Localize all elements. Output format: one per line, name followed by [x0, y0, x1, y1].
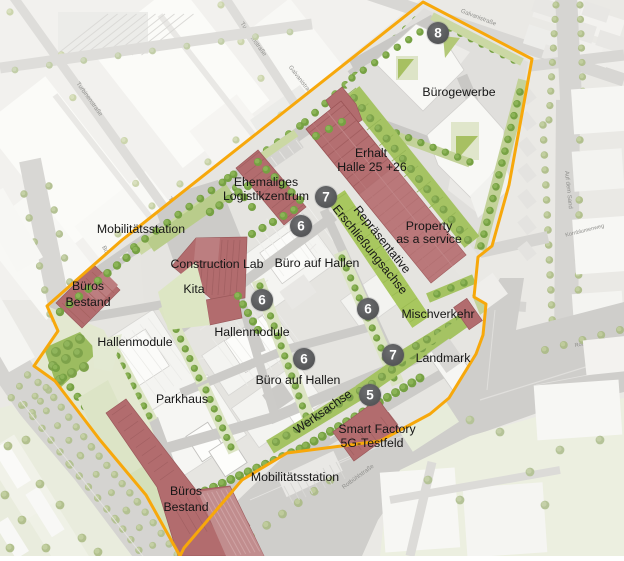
svg-text:Mischverkehr: Mischverkehr — [401, 307, 474, 321]
svg-text:Erhalt: Erhalt — [355, 146, 388, 160]
svg-text:Hallenmodule: Hallenmodule — [97, 335, 172, 349]
svg-text:Ehemaliges: Ehemaliges — [234, 175, 298, 189]
svg-text:Smart Factory: Smart Factory — [338, 422, 416, 436]
svg-text:Property: Property — [406, 219, 453, 233]
svg-text:Kita: Kita — [183, 282, 204, 296]
svg-text:Bestand: Bestand — [163, 500, 208, 514]
svg-text:Mobilitätsstation: Mobilitätsstation — [97, 222, 185, 236]
svg-text:Büro auf Hallen: Büro auf Hallen — [256, 373, 341, 387]
svg-text:Bürogewerbe: Bürogewerbe — [422, 85, 495, 99]
svg-text:Büro auf Hallen: Büro auf Hallen — [275, 256, 360, 270]
svg-text:Halle 25 +26: Halle 25 +26 — [337, 160, 407, 174]
svg-text:7: 7 — [389, 348, 397, 363]
svg-text:7: 7 — [322, 190, 330, 205]
svg-text:5: 5 — [366, 388, 374, 403]
svg-text:6: 6 — [297, 219, 305, 234]
svg-text:6: 6 — [300, 352, 308, 367]
svg-text:Büros: Büros — [170, 484, 202, 498]
svg-text:Hallenmodule: Hallenmodule — [214, 325, 289, 339]
svg-text:Logistikzentrum: Logistikzentrum — [223, 189, 309, 203]
svg-text:as a service: as a service — [396, 232, 462, 246]
svg-text:Büros: Büros — [72, 279, 104, 293]
svg-text:Construction Lab: Construction Lab — [171, 257, 264, 271]
svg-text:Bestand: Bestand — [65, 295, 110, 309]
svg-text:Mobilitätsstation: Mobilitätsstation — [251, 470, 339, 484]
svg-text:Parkhaus: Parkhaus — [156, 392, 208, 406]
svg-text:6: 6 — [258, 293, 266, 308]
svg-text:6: 6 — [364, 302, 372, 317]
svg-text:8: 8 — [434, 26, 442, 41]
svg-text:5G-Testfeld: 5G-Testfeld — [341, 436, 404, 450]
svg-text:Landmark: Landmark — [416, 351, 472, 365]
